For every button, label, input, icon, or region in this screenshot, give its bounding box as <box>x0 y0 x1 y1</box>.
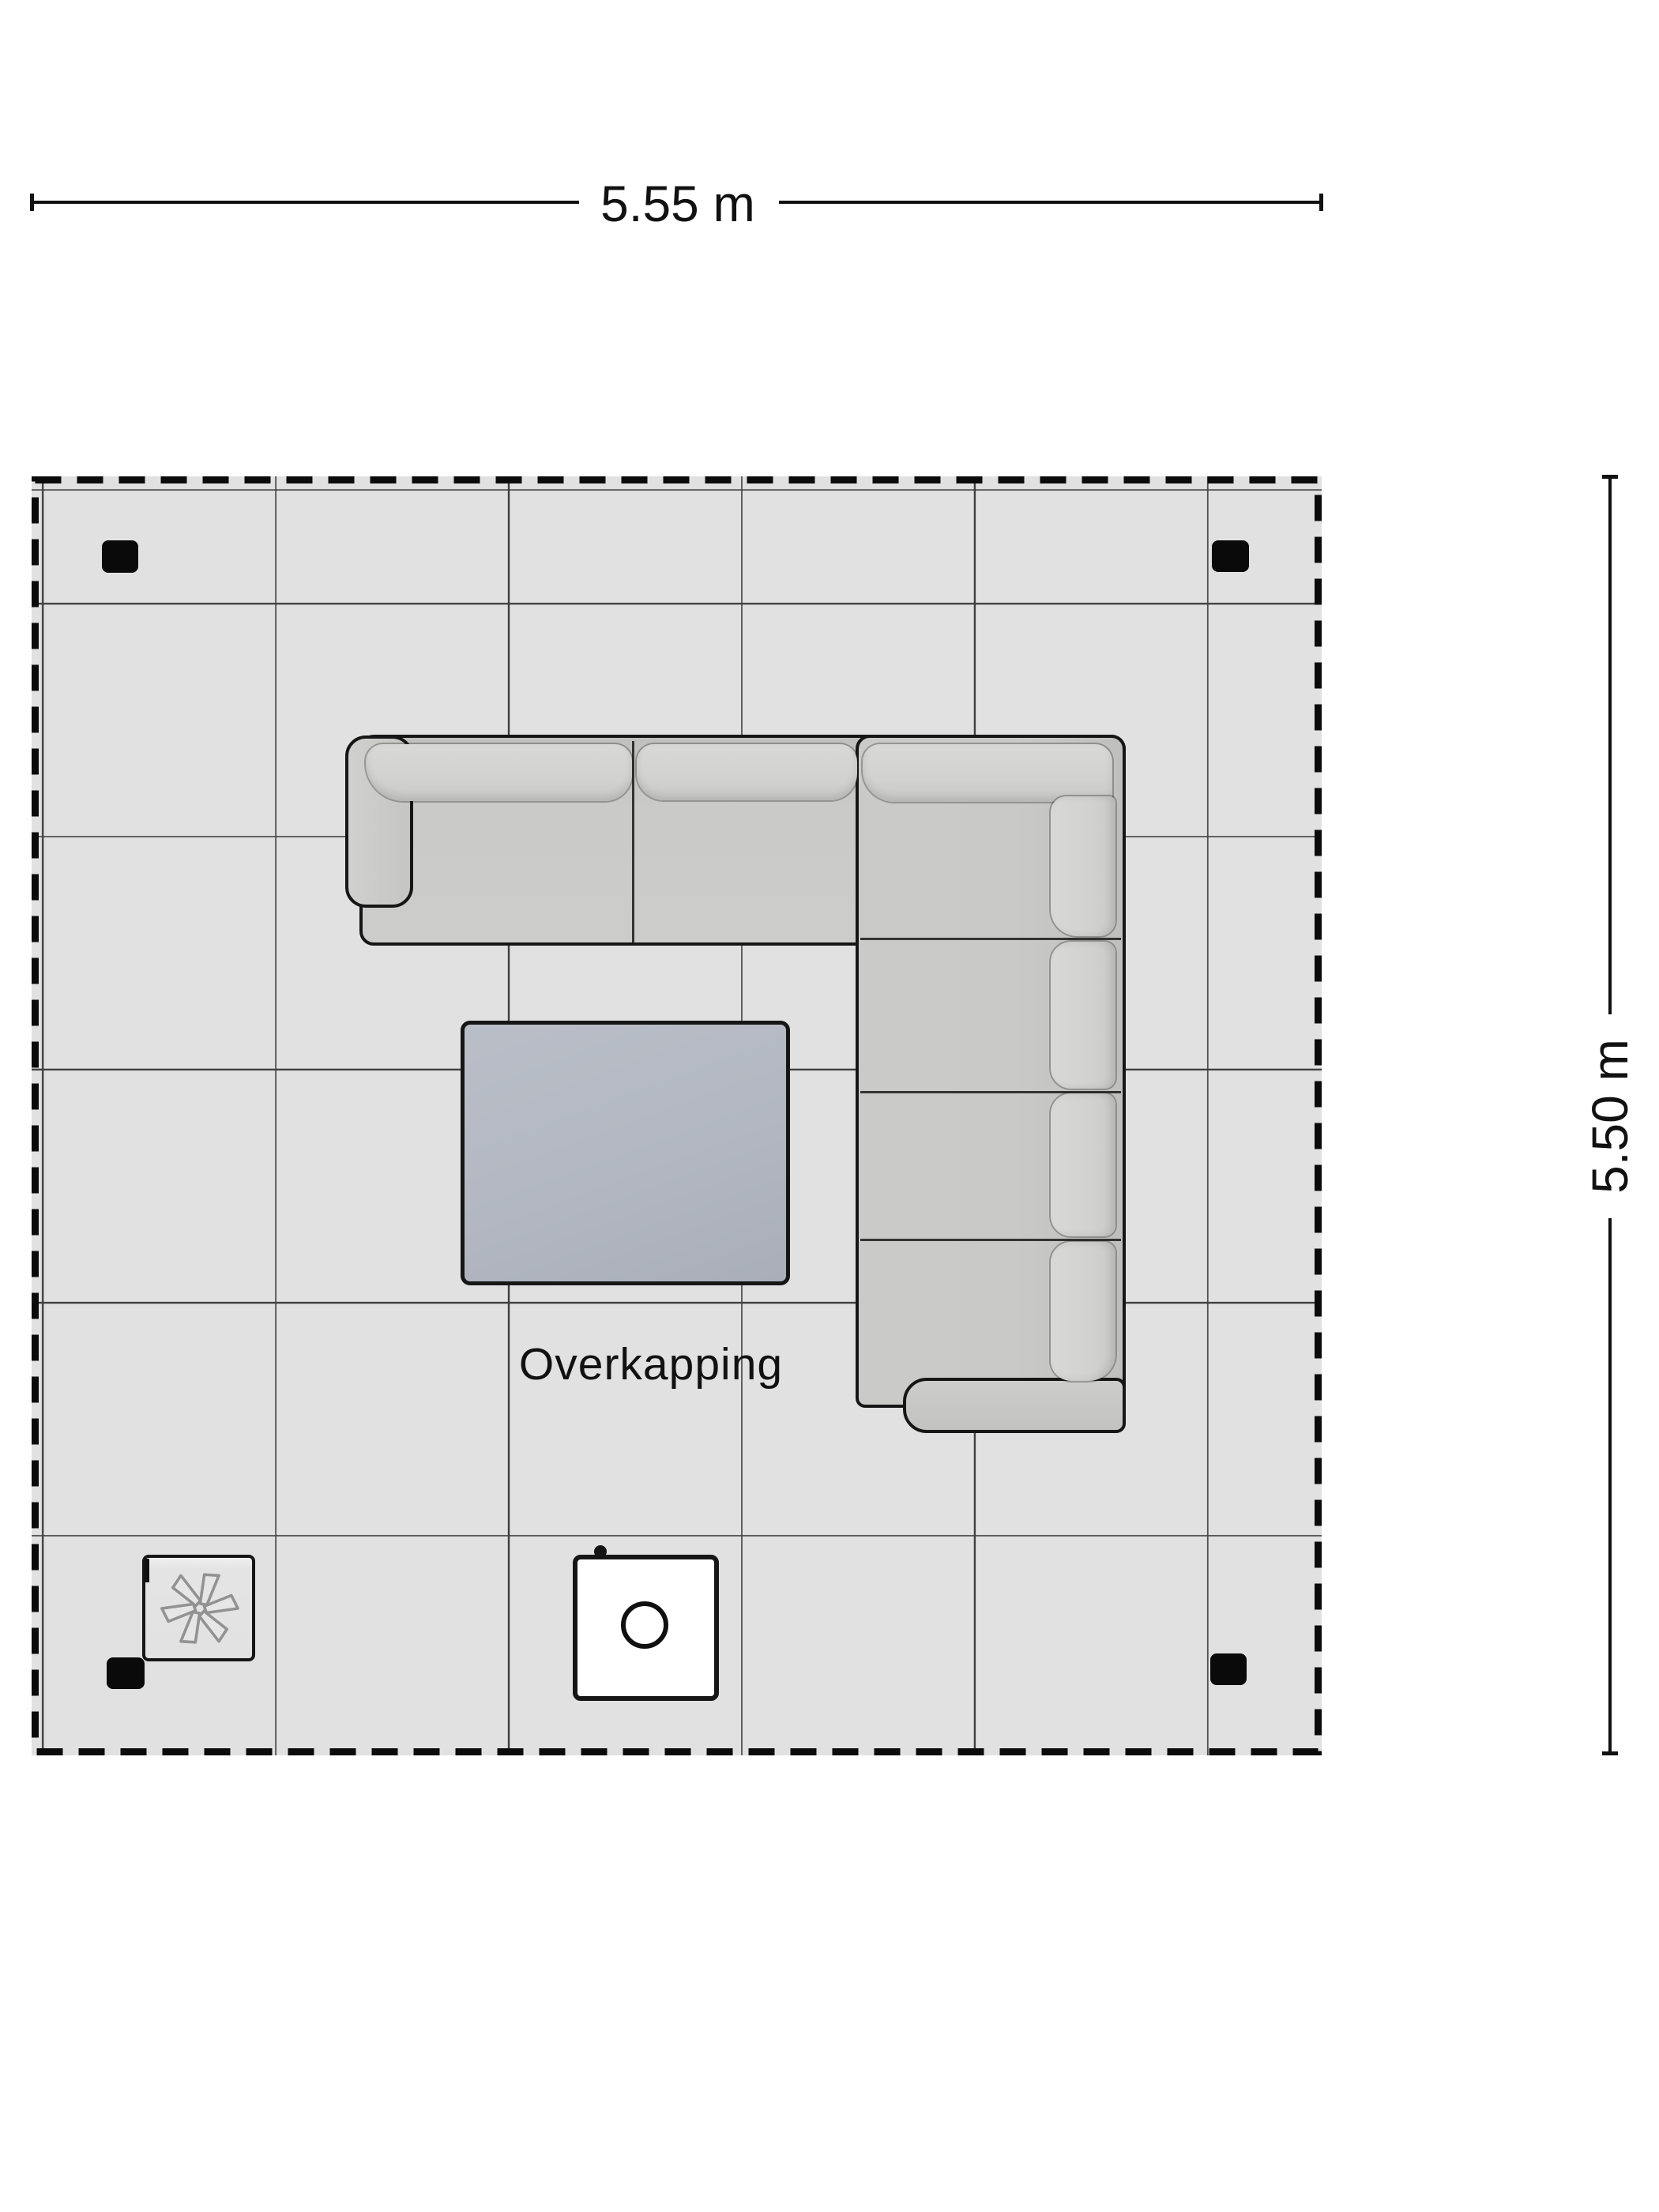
sofa-corner-cushion <box>863 744 1112 802</box>
sofa-seat-seam <box>860 938 1121 940</box>
dimension-line <box>1608 476 1612 1014</box>
sofa-seat-seam <box>632 741 634 942</box>
post-bottom-left <box>107 1657 145 1689</box>
dimension-tick <box>1319 194 1323 211</box>
dimension-line <box>32 201 579 204</box>
dimension-line <box>1608 1218 1612 1755</box>
sofa-back-cushion <box>1051 1242 1115 1381</box>
dimension-height-label: 5.50 m <box>1581 1039 1639 1194</box>
room-label: Overkapping <box>519 1338 783 1390</box>
heater-hinge-icon <box>145 1559 149 1582</box>
fire-table <box>573 1555 719 1701</box>
sofa-back-cushion <box>1051 1093 1115 1236</box>
sofa-corner-cushion <box>1051 796 1115 936</box>
sofa-back-cushion <box>1051 942 1115 1089</box>
patio-heater <box>142 1555 255 1661</box>
post-bottom-right <box>1210 1653 1247 1685</box>
fire-table-knob-icon <box>594 1545 607 1558</box>
post-top-right <box>1212 540 1249 572</box>
sofa-back-cushion <box>637 744 857 800</box>
coffee-table <box>461 1021 790 1285</box>
sofa-seat-seam <box>860 1239 1121 1241</box>
post-top-left <box>102 540 138 573</box>
sofa-bottom-armrest <box>903 1378 1126 1433</box>
floorplan-canvas: 5.55 m 5.50 m <box>0 0 1659 2212</box>
sofa-back-cushion <box>366 744 632 801</box>
fan-icon <box>156 1565 243 1652</box>
dimension-line <box>779 201 1322 204</box>
dimension-width-label: 5.55 m <box>600 175 755 233</box>
fire-table-burner-icon <box>621 1601 668 1649</box>
dimension-tick <box>1602 1751 1618 1755</box>
